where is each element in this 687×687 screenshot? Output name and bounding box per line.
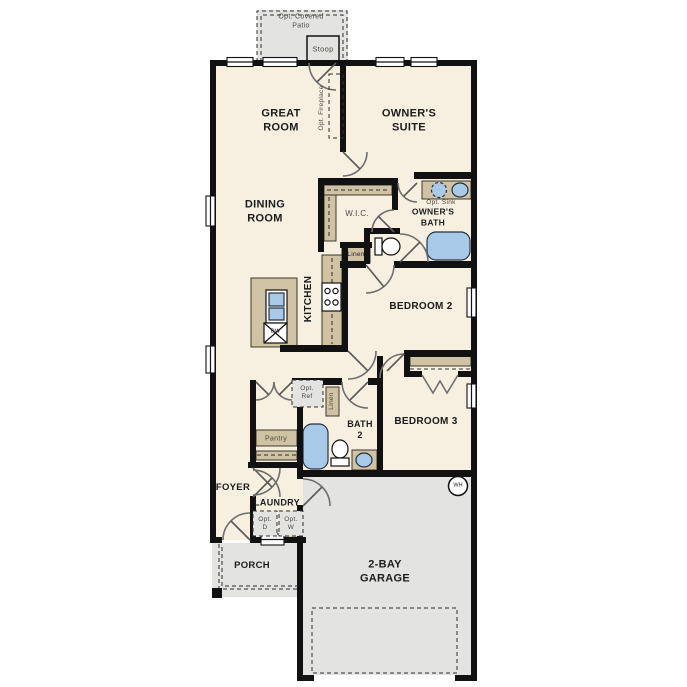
- bed3-closet-shelf: [410, 356, 471, 366]
- window-icon: [263, 58, 297, 67]
- label-water-heater: WH: [453, 483, 462, 490]
- wc-toilet-tank: [375, 238, 382, 255]
- label-dishwasher: DW: [271, 329, 281, 336]
- label-linen-2: Linen: [328, 392, 336, 409]
- label-opt-dryer: Opt. D: [258, 516, 271, 532]
- kitchen-sink-bowl-2: [269, 308, 284, 320]
- label-bedroom-2: BEDROOM 2: [389, 301, 452, 314]
- label-owners-suite: OWNER'S SUITE: [382, 107, 436, 135]
- floor-plan-drawing: [0, 0, 687, 687]
- porch-post: [212, 588, 222, 598]
- label-kitchen: KITCHEN: [303, 276, 316, 323]
- bath2-toilet-bowl: [332, 440, 348, 458]
- pantry-shelf-2: [256, 451, 297, 460]
- label-opt-fireplace: Opt. Fireplace: [318, 85, 326, 130]
- window-icon: [376, 58, 404, 67]
- bath2-sink: [356, 453, 372, 467]
- label-bath-2: BATH 2: [347, 419, 373, 442]
- label-owners-bath: OWNER'S BATH: [412, 206, 454, 227]
- kitchen-sink-bowl-1: [269, 293, 284, 306]
- label-opt-washer: Opt. W: [284, 516, 297, 532]
- window-icon: [467, 384, 476, 408]
- owners-bath-tub: [427, 232, 470, 260]
- label-foyer: FOYER: [216, 482, 250, 494]
- label-great-room: GREAT ROOM: [261, 107, 300, 135]
- label-opt-ref: Opt. Ref: [300, 385, 313, 401]
- optional-sink-icon: [432, 183, 447, 198]
- label-opt-covered-patio: Opt. Covered Patio: [278, 13, 323, 31]
- label-wic: W.I.C.: [345, 209, 369, 219]
- label-stoop: Stoop: [312, 44, 333, 53]
- window-icon: [227, 58, 253, 67]
- label-porch: PORCH: [234, 560, 270, 572]
- window-icon: [206, 346, 215, 373]
- bath2-tub: [303, 424, 328, 469]
- window-icon: [206, 196, 215, 226]
- range-icon: [322, 283, 341, 311]
- floor-plan: Opt. Covered Patio Stoop GREAT ROOM OWNE…: [0, 0, 687, 687]
- label-pantry: Pantry: [265, 436, 287, 445]
- label-dining-room: DINING ROOM: [245, 198, 285, 226]
- window-icon: [411, 58, 437, 67]
- label-laundry: LAUNDRY: [254, 497, 300, 508]
- window-icon: [467, 288, 476, 317]
- label-garage: 2-BAY GARAGE: [360, 558, 410, 586]
- owners-bath-sink: [452, 183, 468, 197]
- label-linen: Linen: [347, 251, 364, 259]
- wic-shelf-left: [324, 195, 336, 241]
- bath2-toilet-tank: [331, 458, 349, 466]
- wc-toilet-bowl: [382, 238, 400, 255]
- label-bedroom-3: BEDROOM 3: [394, 416, 457, 429]
